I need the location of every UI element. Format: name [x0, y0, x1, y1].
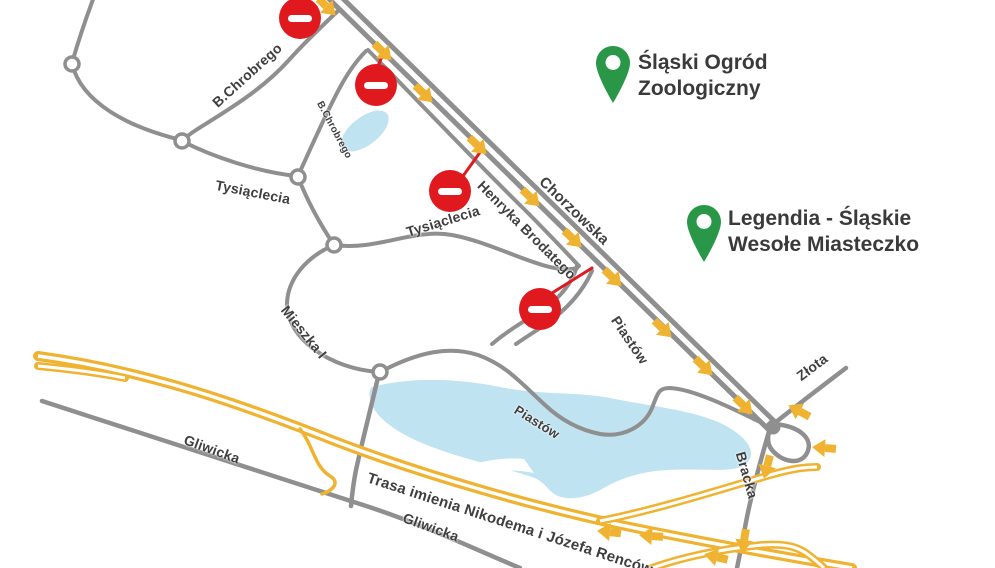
direction-arrow-icon [689, 352, 719, 382]
street-label: Piastów [608, 313, 652, 367]
street-label: Gliwicka [182, 431, 242, 466]
no-entry-sign-icon [429, 170, 471, 212]
poi-zoo-label: Śląski Ogród Zoologiczny [638, 50, 768, 102]
street-label: Złota [793, 350, 830, 384]
street-label: Gliwicka [401, 509, 461, 544]
direction-arrow-icon [811, 438, 836, 458]
street-label: B.Chrobrego [209, 40, 285, 111]
direction-arrow-icon [702, 546, 729, 568]
street-label: Piastów [512, 402, 563, 441]
direction-arrow-icon [463, 131, 493, 161]
direction-arrow-icon [784, 397, 814, 424]
direction-arrow-icon [368, 37, 398, 67]
poi-legendia-line2: Wesołe Miasteczko [728, 232, 919, 258]
no-entry-sign-icon [355, 64, 397, 106]
street-label: Tysiąclecia [214, 177, 292, 207]
no-entry-sign-icon [519, 288, 561, 330]
poi-zoo-line1: Śląski Ogród [638, 50, 768, 76]
direction-arrow-icon [729, 391, 759, 421]
direction-arrow-icon [409, 79, 439, 109]
direction-arrow-icon [638, 526, 663, 546]
poi-legendia-line1: Legendia - Śląskie [728, 206, 919, 232]
direction-arrow-icon [596, 522, 622, 542]
map-pin-icon [596, 46, 630, 103]
direction-arrow-icon [755, 453, 778, 481]
poi-legendia-label: Legendia - Śląskie Wesołe Miasteczko [728, 206, 919, 258]
map-canvas: B.ChrobregoB.ChrobregoTysiącleciaTysiącl… [0, 0, 995, 568]
poi-zoo-line2: Zoologiczny [638, 76, 768, 102]
street-label: B.Chrobrego [314, 99, 353, 160]
direction-arrow-icon [733, 528, 755, 555]
direction-arrow-icon [598, 263, 628, 293]
map-pin-icon [687, 205, 721, 262]
direction-arrow-icon [648, 314, 678, 344]
label-layer: B.ChrobregoB.ChrobregoTysiącleciaTysiącl… [0, 0, 995, 568]
street-label: Mieszka I [278, 302, 330, 361]
